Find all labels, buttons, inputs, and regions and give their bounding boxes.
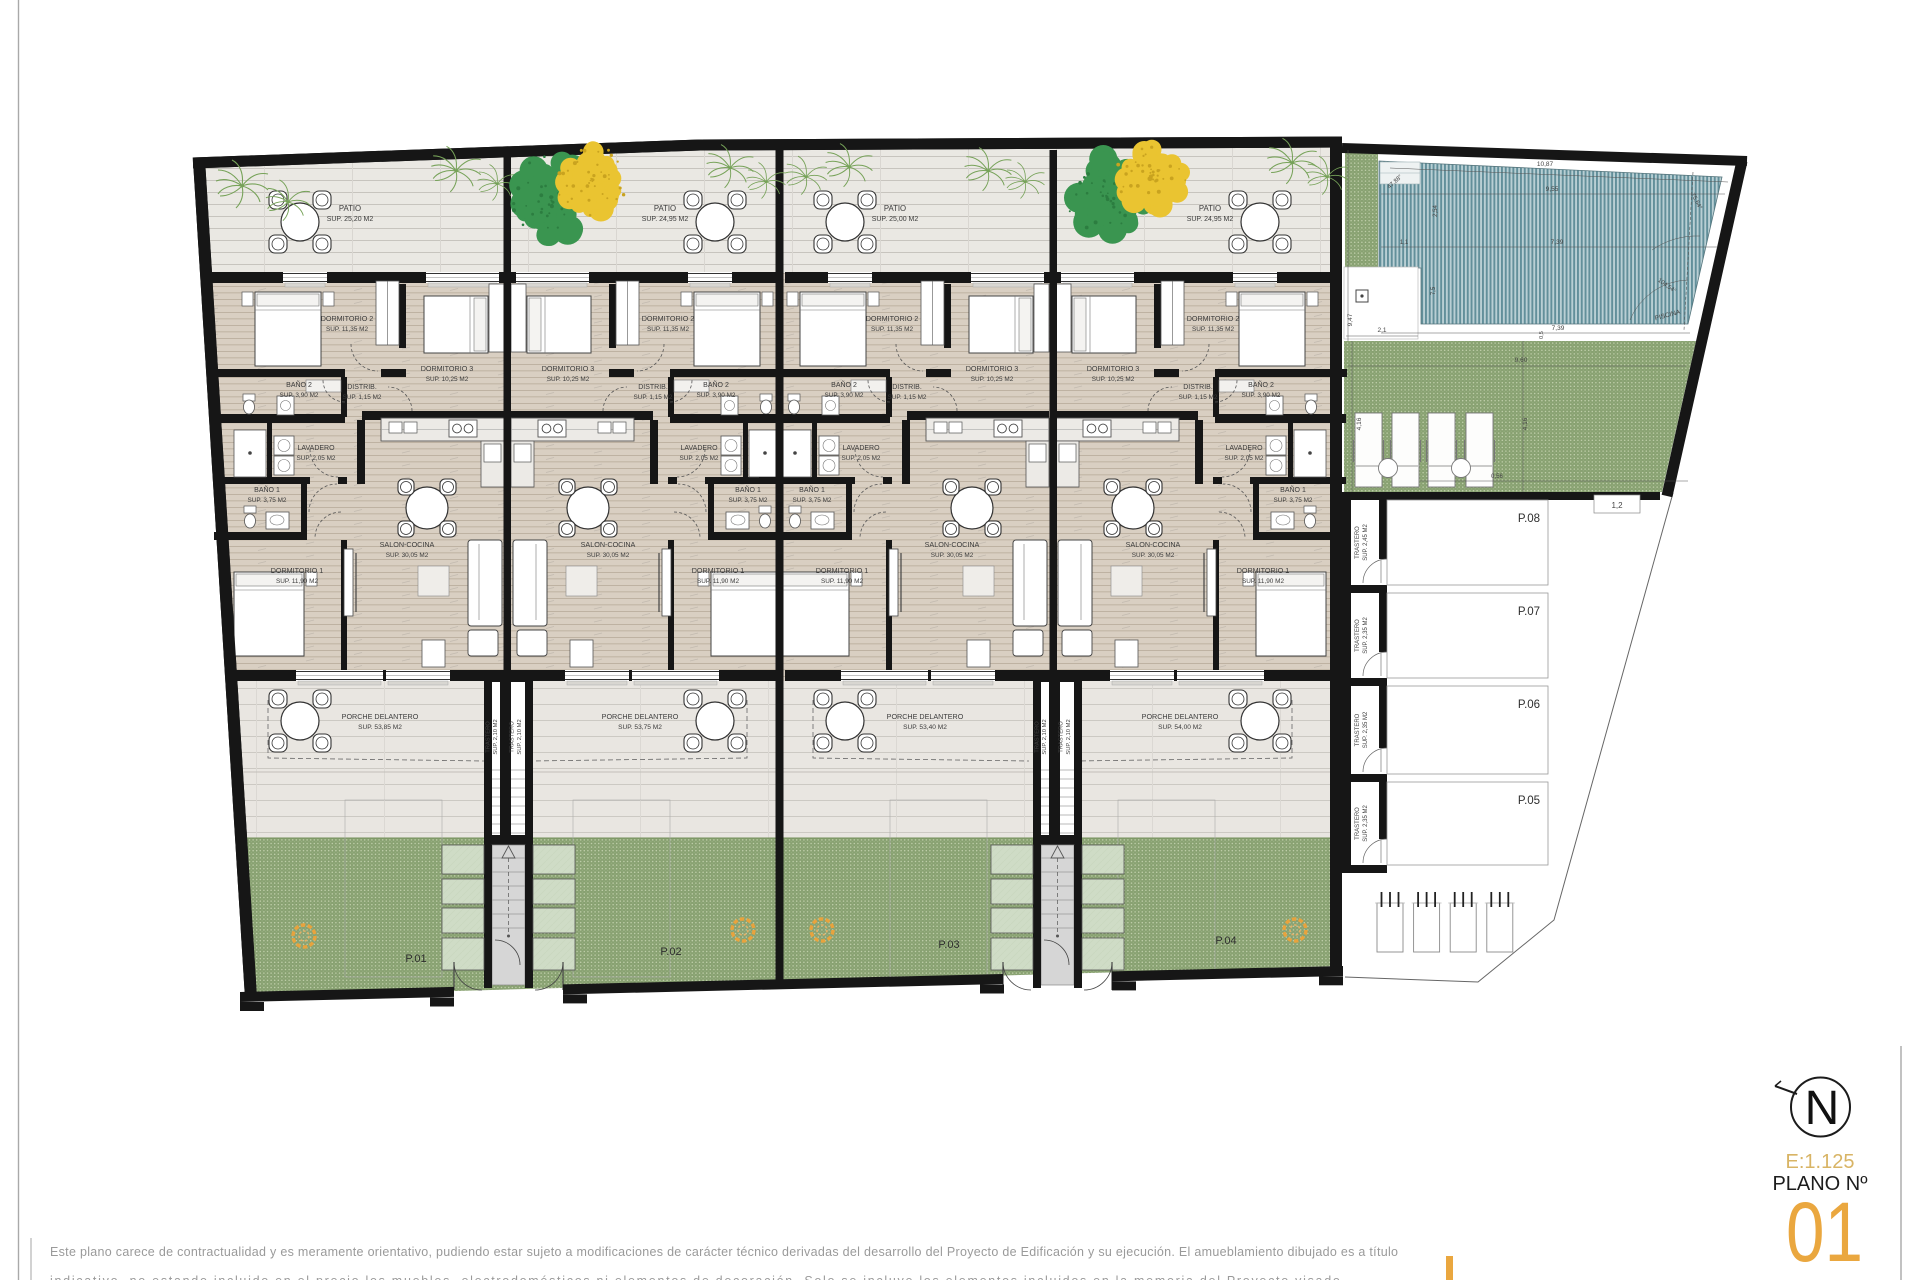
svg-text:P.08: P.08 — [1518, 513, 1540, 525]
svg-text:SUP. 1,15 M2: SUP. 1,15 M2 — [888, 394, 927, 401]
svg-text:SUP. 2,05 M2: SUP. 2,05 M2 — [297, 455, 336, 462]
svg-text:DISTRIB.: DISTRIB. — [1183, 384, 1213, 391]
svg-text:9,60: 9,60 — [1515, 357, 1528, 364]
svg-text:4,16: 4,16 — [1522, 417, 1529, 430]
svg-text:TRASTERO: TRASTERO — [486, 721, 492, 753]
svg-text:SUP. 10,25 M2: SUP. 10,25 M2 — [547, 376, 590, 383]
svg-text:SALON-COCINA: SALON-COCINA — [1126, 540, 1181, 549]
svg-text:LAVADERO: LAVADERO — [842, 445, 880, 452]
svg-text:SUP. 1,15 M2: SUP. 1,15 M2 — [634, 394, 673, 401]
svg-text:TRASTERO: TRASTERO — [1355, 807, 1361, 840]
svg-text:SUP. 24,95 M2: SUP. 24,95 M2 — [1187, 216, 1234, 223]
svg-text:SUP. 3,75 M2: SUP. 3,75 M2 — [248, 497, 287, 504]
svg-text:SUP. 11,35 M2: SUP. 11,35 M2 — [871, 326, 913, 333]
svg-text:SUP. 2,05 M2: SUP. 2,05 M2 — [1225, 455, 1264, 462]
svg-text:DORMITORIO 3: DORMITORIO 3 — [542, 364, 595, 373]
svg-text:BAÑO 2: BAÑO 2 — [1248, 380, 1274, 389]
svg-text:SUP. 11,90 M2: SUP. 11,90 M2 — [697, 578, 739, 585]
svg-text:TRASTERO: TRASTERO — [1355, 713, 1361, 746]
svg-text:SUP. 3,90 M2: SUP. 3,90 M2 — [697, 392, 736, 399]
svg-text:SUP. 2,10 M2: SUP. 2,10 M2 — [493, 719, 499, 754]
svg-text:SUP. 11,90 M2: SUP. 11,90 M2 — [1242, 578, 1284, 585]
svg-text:P.06: P.06 — [1518, 699, 1540, 711]
svg-text:DISTRIB.: DISTRIB. — [347, 384, 377, 391]
svg-text:TRASTERO: TRASTERO — [1355, 526, 1361, 559]
svg-text:PORCHE DELANTERO: PORCHE DELANTERO — [342, 712, 419, 721]
svg-text:0,5: 0,5 — [1539, 331, 1545, 339]
svg-text:SUP. 2,45 M2: SUP. 2,45 M2 — [1363, 524, 1369, 561]
svg-text:TRASTERO: TRASTERO — [1035, 721, 1041, 753]
svg-text:DORMITORIO 3: DORMITORIO 3 — [1087, 364, 1140, 373]
svg-text:SUP. 3,75 M2: SUP. 3,75 M2 — [729, 497, 768, 504]
svg-text:PATIO: PATIO — [339, 204, 361, 213]
svg-text:SUP. 3,75 M2: SUP. 3,75 M2 — [1274, 497, 1313, 504]
svg-text:SUP. 3,90 M2: SUP. 3,90 M2 — [825, 392, 864, 399]
svg-text:SALON-COCINA: SALON-COCINA — [581, 540, 636, 549]
svg-text:DORMITORIO 1: DORMITORIO 1 — [692, 566, 745, 575]
svg-text:SUP. 30,05 M2: SUP. 30,05 M2 — [587, 552, 630, 559]
svg-text:SUP. 1,15 M2: SUP. 1,15 M2 — [1179, 394, 1218, 401]
svg-text:SUP. 53,40 M2: SUP. 53,40 M2 — [903, 724, 947, 731]
svg-text:PATIO: PATIO — [654, 204, 676, 213]
svg-text:DISTRIB.: DISTRIB. — [892, 384, 922, 391]
svg-text:SUP. 11,90 M2: SUP. 11,90 M2 — [821, 578, 863, 585]
svg-text:SUP. 30,05 M2: SUP. 30,05 M2 — [386, 552, 429, 559]
svg-text:SUP. 10,25 M2: SUP. 10,25 M2 — [971, 376, 1014, 383]
svg-text:SUP. 25,00 M2: SUP. 25,00 M2 — [872, 216, 919, 223]
svg-text:SUP. 25,20 M2: SUP. 25,20 M2 — [327, 216, 374, 223]
svg-text:2,1: 2,1 — [1377, 327, 1386, 334]
svg-text:DORMITORIO 1: DORMITORIO 1 — [816, 566, 869, 575]
svg-text:SUP. 3,75 M2: SUP. 3,75 M2 — [793, 497, 832, 504]
svg-text:DORMITORIO 3: DORMITORIO 3 — [421, 364, 474, 373]
svg-text:SUP. 11,90 M2: SUP. 11,90 M2 — [276, 578, 318, 585]
svg-text:SUP. 11,35 M2: SUP. 11,35 M2 — [326, 326, 368, 333]
svg-text:P.07: P.07 — [1518, 606, 1540, 618]
svg-text:TRASTERO: TRASTERO — [510, 721, 516, 753]
svg-text:DISTRIB.: DISTRIB. — [638, 384, 668, 391]
svg-text:7,5: 7,5 — [1431, 286, 1437, 295]
svg-text:9,47: 9,47 — [1347, 313, 1354, 326]
svg-text:SALON-COCINA: SALON-COCINA — [380, 540, 435, 549]
svg-text:0,56: 0,56 — [1491, 474, 1503, 480]
svg-text:BAÑO 2: BAÑO 2 — [831, 380, 857, 389]
svg-text:SUP. 3,90 M2: SUP. 3,90 M2 — [1242, 392, 1281, 399]
svg-text:PATIO: PATIO — [1199, 204, 1221, 213]
svg-text:SUP. 30,05 M2: SUP. 30,05 M2 — [1132, 552, 1175, 559]
svg-text:BAÑO 2: BAÑO 2 — [703, 380, 729, 389]
svg-text:DORMITORIO 2: DORMITORIO 2 — [1187, 314, 1240, 323]
svg-text:SUP. 10,25 M2: SUP. 10,25 M2 — [1092, 376, 1135, 383]
svg-text:SUP. 2,35 M2: SUP. 2,35 M2 — [1363, 617, 1369, 654]
svg-text:BAÑO 1: BAÑO 1 — [735, 485, 761, 494]
svg-text:SUP. 2,35 M2: SUP. 2,35 M2 — [1363, 805, 1369, 842]
svg-text:P.02: P.02 — [660, 946, 681, 958]
svg-text:PORCHE DELANTERO: PORCHE DELANTERO — [1142, 712, 1219, 721]
svg-text:DORMITORIO 3: DORMITORIO 3 — [966, 364, 1019, 373]
svg-text:SUP. 1,15 M2: SUP. 1,15 M2 — [343, 394, 382, 401]
svg-text:DORMITORIO 2: DORMITORIO 2 — [642, 314, 695, 323]
svg-text:SUP. 53,75 M2: SUP. 53,75 M2 — [618, 724, 662, 731]
svg-text:7,39: 7,39 — [1551, 239, 1564, 246]
svg-text:4,16: 4,16 — [1356, 417, 1363, 430]
svg-text:SUP. 30,05 M2: SUP. 30,05 M2 — [931, 552, 974, 559]
svg-text:SUP. 3,90 M2: SUP. 3,90 M2 — [280, 392, 319, 399]
svg-text:01: 01 — [1786, 1185, 1863, 1279]
svg-text:SUP. 11,35 M2: SUP. 11,35 M2 — [1192, 326, 1234, 333]
svg-text:SALON-COCINA: SALON-COCINA — [925, 540, 980, 549]
svg-text:7,39: 7,39 — [1552, 325, 1565, 332]
svg-text:SUP. 2,10 M2: SUP. 2,10 M2 — [1042, 719, 1048, 754]
svg-text:BAÑO 1: BAÑO 1 — [254, 485, 280, 494]
svg-text:N: N — [1805, 1082, 1840, 1135]
svg-text:LAVADERO: LAVADERO — [680, 445, 718, 452]
svg-text:SUP. 54,00 M2: SUP. 54,00 M2 — [1158, 724, 1202, 731]
svg-text:SUP. 11,35 M2: SUP. 11,35 M2 — [647, 326, 689, 333]
svg-text:SUP. 2,05 M2: SUP. 2,05 M2 — [842, 455, 881, 462]
svg-text:9,55: 9,55 — [1546, 186, 1559, 193]
svg-text:PATIO: PATIO — [884, 204, 906, 213]
svg-text:10,87: 10,87 — [1537, 161, 1554, 168]
svg-text:P.04: P.04 — [1215, 935, 1236, 947]
svg-text:LAVADERO: LAVADERO — [1225, 445, 1263, 452]
svg-text:BAÑO 2: BAÑO 2 — [286, 380, 312, 389]
svg-text:PORCHE DELANTERO: PORCHE DELANTERO — [602, 712, 679, 721]
svg-text:SUP. 2,10 M2: SUP. 2,10 M2 — [517, 719, 523, 754]
svg-text:SUP. 2,35 M2: SUP. 2,35 M2 — [1363, 711, 1369, 748]
svg-text:SUP. 24,95 M2: SUP. 24,95 M2 — [642, 216, 689, 223]
svg-text:2,54: 2,54 — [1433, 205, 1439, 217]
svg-text:TRASTERO: TRASTERO — [1355, 619, 1361, 652]
svg-text:P.03: P.03 — [938, 939, 959, 951]
svg-text:DORMITORIO 1: DORMITORIO 1 — [1237, 566, 1290, 575]
svg-text:DORMITORIO 2: DORMITORIO 2 — [321, 314, 374, 323]
svg-text:indicativo, no estando incluid: indicativo, no estando incluido en el pr… — [50, 1274, 1345, 1280]
svg-text:SUP. 2,05 M2: SUP. 2,05 M2 — [680, 455, 719, 462]
svg-text:SUP. 10,25 M2: SUP. 10,25 M2 — [426, 376, 469, 383]
svg-text:BAÑO 1: BAÑO 1 — [799, 485, 825, 494]
svg-text:PORCHE DELANTERO: PORCHE DELANTERO — [887, 712, 964, 721]
svg-text:1,2: 1,2 — [1611, 501, 1623, 510]
svg-text:DORMITORIO 2: DORMITORIO 2 — [866, 314, 919, 323]
svg-text:1,1: 1,1 — [1400, 240, 1409, 246]
svg-text:SUP. 53,85 M2: SUP. 53,85 M2 — [358, 724, 402, 731]
svg-text:E:1.125: E:1.125 — [1786, 1151, 1855, 1173]
svg-text:DORMITORIO 1: DORMITORIO 1 — [271, 566, 324, 575]
svg-text:TRASTERO: TRASTERO — [1059, 721, 1065, 753]
svg-text:SUP. 2,10 M2: SUP. 2,10 M2 — [1066, 719, 1072, 754]
svg-text:LAVADERO: LAVADERO — [297, 445, 335, 452]
svg-text:P.01: P.01 — [405, 953, 426, 965]
svg-text:Este plano carece de contractu: Este plano carece de contractualidad y e… — [50, 1245, 1398, 1259]
svg-text:P.05: P.05 — [1518, 795, 1540, 807]
svg-text:BAÑO 1: BAÑO 1 — [1280, 485, 1306, 494]
